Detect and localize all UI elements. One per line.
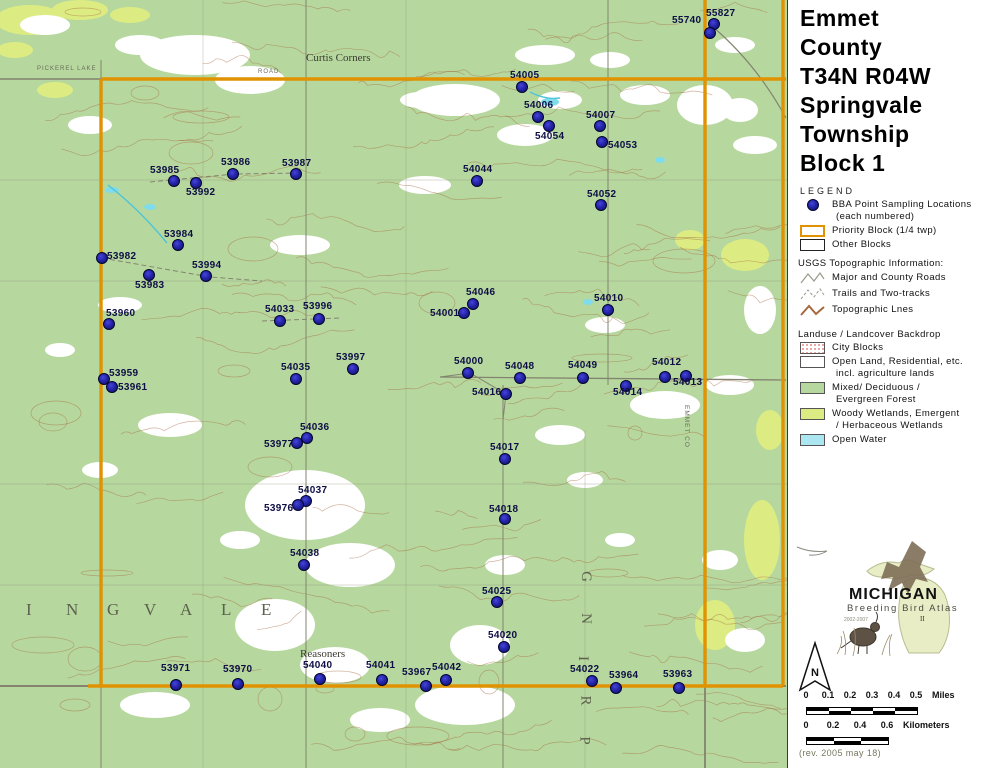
bba-point-dot-53970 bbox=[232, 678, 244, 690]
bba-point-label-54036: 54036 bbox=[300, 422, 329, 433]
bba-point-label-54001: 54001 bbox=[430, 308, 459, 319]
bba-point-label-54007: 54007 bbox=[586, 110, 615, 121]
north-arrow-label: N bbox=[811, 667, 819, 679]
bba-point-dot-53961 bbox=[106, 381, 118, 393]
legend-item-label: Open Water bbox=[832, 434, 887, 446]
bba-point-label-55740: 55740 bbox=[672, 15, 701, 26]
bba-points-layer: 5582755740540055400654054540075405353985… bbox=[0, 0, 787, 768]
topo-line-icon bbox=[800, 303, 825, 317]
legend-item-bba-points-line2: (each numbered) bbox=[836, 211, 1000, 223]
bba-point-label-53992: 53992 bbox=[186, 187, 215, 198]
legend-item-city-blocks: City Blocks bbox=[800, 342, 1000, 354]
revision-note: (rev. 2005 may 18) bbox=[799, 748, 881, 758]
bba-point-dot-54038 bbox=[298, 559, 310, 571]
bba-point-dot-54046 bbox=[467, 298, 479, 310]
bba-point-label-54014: 54014 bbox=[613, 387, 642, 398]
bba-point-label-53984: 53984 bbox=[164, 229, 193, 240]
bba-point-label-54046: 54046 bbox=[466, 287, 495, 298]
scale-tick-label: 0.6 bbox=[876, 720, 898, 730]
scale-tick-label: 0.1 bbox=[817, 690, 839, 700]
bba-point-label-53983: 53983 bbox=[135, 280, 164, 291]
bba-point-label-54005: 54005 bbox=[510, 70, 539, 81]
legend-item-other-blocks: Other Blocks bbox=[800, 239, 1000, 251]
north-arrow: N bbox=[795, 640, 839, 696]
map-title-line: County bbox=[800, 33, 1000, 62]
bba-point-label-54037: 54037 bbox=[298, 485, 327, 496]
scale-tick-label: 0.3 bbox=[861, 690, 883, 700]
bba-point-label-54022: 54022 bbox=[570, 664, 599, 675]
legend-item-bba-points: BBA Point Sampling Locations bbox=[800, 199, 1000, 211]
legend-item-forest-line2: Evergreen Forest bbox=[836, 394, 1000, 406]
logo-subtitle: Breeding Bird Atlas bbox=[847, 603, 958, 614]
map-title: EmmetCountyT34N R04WSpringvaleTownshipBl… bbox=[800, 4, 1000, 178]
scale-tick-label: 0 bbox=[795, 720, 817, 730]
scale-tick-label: 0.4 bbox=[849, 720, 871, 730]
bba-point-dot-53986 bbox=[227, 168, 239, 180]
bba-point-dot-54001 bbox=[458, 307, 470, 319]
bba-point-label-53970: 53970 bbox=[223, 664, 252, 675]
legend-item-label: Open Land, Residential, etc. bbox=[832, 356, 963, 368]
map-sheet: Curtis Corners Reasoners PICKEREL LAKE R… bbox=[0, 0, 1000, 768]
bba-point-label-53976: 53976 bbox=[264, 503, 293, 514]
bba-point-dot-54010 bbox=[602, 304, 614, 316]
bba-point-dot-53985 bbox=[168, 175, 180, 187]
scale-unit-label: Kilometers bbox=[903, 720, 950, 730]
bba-point-dot-54053 bbox=[596, 136, 608, 148]
bba-point-label-54020: 54020 bbox=[488, 630, 517, 641]
usgs-section-header: USGS Topographic Information: bbox=[798, 258, 1000, 269]
legend-item-label: Trails and Two-tracks bbox=[832, 288, 930, 300]
map-title-line: T34N R04W bbox=[800, 62, 1000, 91]
legend-item-label: Other Blocks bbox=[832, 239, 891, 251]
bba-point-label-54013: 54013 bbox=[673, 377, 702, 388]
legend-item-label: Major and County Roads bbox=[832, 272, 946, 284]
bba-point-dot-53960 bbox=[103, 318, 115, 330]
scale-miles-bar bbox=[806, 707, 918, 715]
bba-point-label-54049: 54049 bbox=[568, 360, 597, 371]
trails-line-icon bbox=[800, 287, 825, 301]
bba-point-dot-53964 bbox=[610, 682, 622, 694]
scale-tick-label: 0.5 bbox=[905, 690, 927, 700]
bba-point-dot-54044 bbox=[471, 175, 483, 187]
bba-point-dot-53996 bbox=[313, 313, 325, 325]
bba-point-dot-54007 bbox=[594, 120, 606, 132]
legend-item-topo-lines: Topographic Lnes bbox=[800, 303, 1000, 317]
bba-point-label-54053: 54053 bbox=[608, 140, 637, 151]
bba-point-dot-54048 bbox=[514, 372, 526, 384]
bba-point-dot-54020 bbox=[498, 641, 510, 653]
landuse-section-header: Landuse / Landcover Backdrop bbox=[798, 329, 1000, 340]
bba-point-dot-54016 bbox=[500, 388, 512, 400]
map-title-line: Block 1 bbox=[800, 149, 1000, 178]
bba-point-label-54048: 54048 bbox=[505, 361, 534, 372]
legend-item-label: Woody Wetlands, Emergent bbox=[832, 408, 960, 420]
map-title-line: Township bbox=[800, 120, 1000, 149]
scale-km-bar bbox=[806, 737, 889, 745]
bba-point-label-54025: 54025 bbox=[482, 586, 511, 597]
bba-point-dot-54005 bbox=[516, 81, 528, 93]
legend-item-label: Topographic Lnes bbox=[832, 304, 913, 316]
logo-numeral: II bbox=[920, 615, 925, 623]
bba-point-label-53961: 53961 bbox=[118, 382, 147, 393]
city-blocks-swatch bbox=[800, 342, 825, 354]
legend-item-wetlands: Woody Wetlands, Emergent bbox=[800, 408, 1000, 420]
branch-sketch bbox=[797, 547, 827, 555]
legend-item-open-water: Open Water bbox=[800, 434, 1000, 446]
scale-miles-ticks: 00.10.20.30.40.5Miles bbox=[806, 690, 996, 701]
bba-point-label-55827: 55827 bbox=[706, 8, 735, 19]
legend-item-wetlands-line2: / Herbaceous Wetlands bbox=[836, 420, 1000, 432]
bba-point-dot-53976 bbox=[292, 499, 304, 511]
forest-swatch bbox=[800, 382, 825, 394]
scale-tick-label: 0.2 bbox=[839, 690, 861, 700]
bba-point-dot-54052 bbox=[595, 199, 607, 211]
bba-point-label-54044: 54044 bbox=[463, 164, 492, 175]
bba-point-label-53963: 53963 bbox=[663, 669, 692, 680]
legend-item-trails: Trails and Two-tracks bbox=[800, 287, 1000, 301]
bba-point-label-53960: 53960 bbox=[106, 308, 135, 319]
open-land-swatch bbox=[800, 356, 825, 368]
bba-point-label-54012: 54012 bbox=[652, 357, 681, 368]
legend-item-open-land: Open Land, Residential, etc. bbox=[800, 356, 1000, 368]
bba-point-dot-53994 bbox=[200, 270, 212, 282]
major-roads-line-icon bbox=[800, 271, 825, 285]
legend-item-label: BBA Point Sampling Locations bbox=[832, 199, 972, 211]
priority-block-swatch bbox=[800, 225, 825, 237]
bba-point-dot-53997 bbox=[347, 363, 359, 375]
bba-point-label-53967: 53967 bbox=[402, 667, 431, 678]
topographic-map-canvas[interactable]: Curtis Corners Reasoners PICKEREL LAKE R… bbox=[0, 0, 787, 768]
bba-point-label-53982: 53982 bbox=[107, 251, 136, 262]
bba-point-dot-54022 bbox=[586, 675, 598, 687]
bba-point-label-53997: 53997 bbox=[336, 352, 365, 363]
bba-point-label-53985: 53985 bbox=[150, 165, 179, 176]
legend-item-label: Mixed/ Deciduous / bbox=[832, 382, 920, 394]
legend-item-label: City Blocks bbox=[832, 342, 883, 354]
bba-point-label-54017: 54017 bbox=[490, 442, 519, 453]
bba-point-label-54033: 54033 bbox=[265, 304, 294, 315]
legend-item-label: Priority Block (1/4 twp) bbox=[832, 225, 937, 237]
bba-point-dot-54025 bbox=[491, 596, 503, 608]
bba-point-icon bbox=[800, 199, 825, 211]
bba-point-label-54018: 54018 bbox=[489, 504, 518, 515]
logo-title: MICHIGAN bbox=[849, 586, 938, 603]
bba-point-dot-53963 bbox=[673, 682, 685, 694]
bba-point-label-54040: 54040 bbox=[303, 660, 332, 671]
wetlands-swatch bbox=[800, 408, 825, 420]
legend-title: LEGEND bbox=[800, 186, 1000, 196]
legend-item-major-roads: Major and County Roads bbox=[800, 271, 1000, 285]
bba-point-label-54038: 54038 bbox=[290, 548, 319, 559]
scale-bar-kilometers: 00.20.40.6Kilometers bbox=[806, 720, 996, 749]
bba-point-dot-53967 bbox=[420, 680, 432, 692]
scale-tick-label: 0.2 bbox=[822, 720, 844, 730]
bba-point-dot-54040 bbox=[314, 673, 326, 685]
bba-point-label-53964: 53964 bbox=[609, 670, 638, 681]
bba-point-label-53971: 53971 bbox=[161, 663, 190, 674]
scale-unit-label: Miles bbox=[932, 690, 955, 700]
bba-point-dot-53987 bbox=[290, 168, 302, 180]
bba-point-dot-54006 bbox=[532, 111, 544, 123]
bba-point-label-53959: 53959 bbox=[109, 368, 138, 379]
bba-point-label-53987: 53987 bbox=[282, 158, 311, 169]
bba-point-dot-54017 bbox=[499, 453, 511, 465]
bba-point-label-54041: 54041 bbox=[366, 660, 395, 671]
legend-item-forest: Mixed/ Deciduous / bbox=[800, 382, 1000, 394]
bba-point-label-54006: 54006 bbox=[524, 100, 553, 111]
bba-point-label-54010: 54010 bbox=[594, 293, 623, 304]
bba-point-label-53986: 53986 bbox=[221, 157, 250, 168]
scale-tick-label: 0.4 bbox=[883, 690, 905, 700]
map-title-line: Emmet bbox=[800, 4, 1000, 33]
legend-item-priority-block: Priority Block (1/4 twp) bbox=[800, 225, 1000, 237]
bba-point-dot-54000 bbox=[462, 367, 474, 379]
scale-km-ticks: 00.20.40.6Kilometers bbox=[806, 720, 996, 731]
bba-point-dot-54012 bbox=[659, 371, 671, 383]
legend-item-open-land-line2: incl. agriculture lands bbox=[836, 368, 1000, 380]
bba-point-dot-54041 bbox=[376, 674, 388, 686]
bba-point-dot-55740 bbox=[704, 27, 716, 39]
bba-point-label-53996: 53996 bbox=[303, 301, 332, 312]
bba-point-dot-54033 bbox=[274, 315, 286, 327]
bba-point-label-54000: 54000 bbox=[454, 356, 483, 367]
open-water-swatch bbox=[800, 434, 825, 446]
other-blocks-swatch bbox=[800, 239, 825, 251]
bba-point-label-54016: 54016 bbox=[472, 387, 501, 398]
bba-point-label-54052: 54052 bbox=[587, 189, 616, 200]
scale-tick-label: 0 bbox=[795, 690, 817, 700]
bba-point-label-54054: 54054 bbox=[535, 131, 564, 142]
scale-bar-miles: 00.10.20.30.40.5Miles bbox=[806, 690, 996, 719]
bba-point-label-53977: 53977 bbox=[264, 439, 293, 450]
bba-point-label-53994: 53994 bbox=[192, 260, 221, 271]
bba-point-label-54042: 54042 bbox=[432, 662, 461, 673]
bba-point-dot-53984 bbox=[172, 239, 184, 251]
bba-point-dot-54049 bbox=[577, 372, 589, 384]
bba-point-label-54035: 54035 bbox=[281, 362, 310, 373]
map-title-line: Springvale bbox=[800, 91, 1000, 120]
bba-point-dot-54042 bbox=[440, 674, 452, 686]
logo-years: 2002-2007 bbox=[844, 617, 868, 623]
bba-point-dot-53971 bbox=[170, 679, 182, 691]
bba-point-dot-54035 bbox=[290, 373, 302, 385]
